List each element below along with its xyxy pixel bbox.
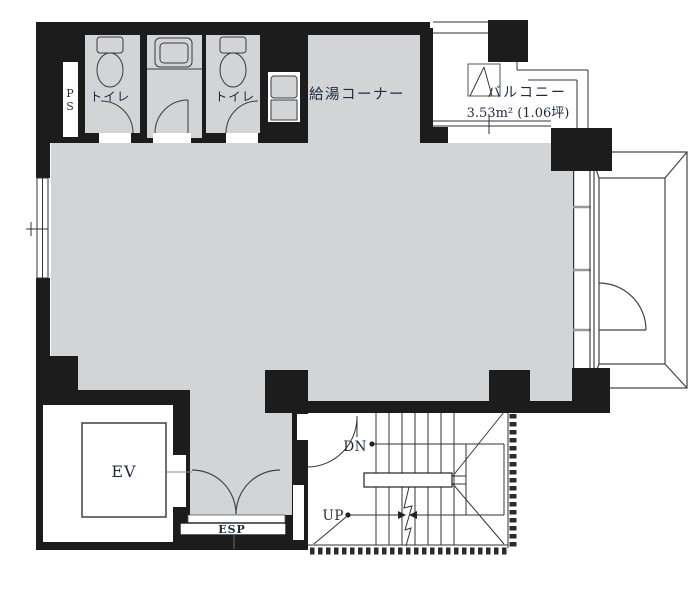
right-bay [573,152,687,388]
elevator-label: EV [111,462,136,481]
stair-bottom-hatch-wall [310,547,508,555]
pier-niche [293,485,304,540]
toilet-left-label: トイレ [90,89,131,104]
stair-dn-dot [369,441,374,446]
wall-column-south [489,370,530,401]
wall-left-upper [36,143,50,178]
bay-door-arc [599,283,646,330]
toilet-right-door-opening [226,133,258,143]
wall-top [308,22,430,35]
bay-miter-br [665,364,687,388]
wall-balcony-block [488,20,528,62]
balcony-area-label: 3.53m² (1.06坪) [467,106,570,121]
kitchenette-sink [271,76,297,98]
stairs-down-label: DN [343,439,367,455]
toilet-left-room [85,35,140,133]
pipe-space-label-p: P [66,87,74,100]
stair-door-opening [297,414,308,440]
bay-inner-frame [599,178,665,364]
bay-outer-frame [590,152,687,388]
kitchenette-label: 給湯コーナー [309,86,405,103]
pipe-space-label-s: S [66,100,74,113]
stair-landing [364,473,452,487]
stairs-up-label: UP [323,508,344,524]
toilet-right-room [206,35,260,133]
wall-corner-block-se [572,368,610,401]
stair-right-hatch-wall [509,414,517,548]
stair-winder-diag-down [452,483,504,544]
wall-corner-block-ne [551,128,612,171]
entrance-threshold [188,515,285,523]
bay-miter-tr [665,152,687,178]
main-room-floor [51,143,575,401]
stair-up-dot [345,512,350,517]
floor-plan: P S トイレ トイレ 給湯コーナー バルコニー 3.53m² (1.06坪) … [0,0,694,596]
esp-label: ESP [218,523,246,536]
wall-corner-kitchenette [420,127,448,143]
balcony-label: バルコニー [487,85,567,101]
toilet-left-door-opening [99,133,131,143]
kitchenette-counter [271,100,297,120]
wall-column-entrance [265,370,308,413]
wall-left-step [36,356,78,392]
wall-stair-top-band [308,401,610,413]
wall-left-lower [36,278,50,358]
wall-balcony-left [420,28,433,130]
toilet-right-label: トイレ [215,89,256,104]
stair-break-zigzag [404,487,412,546]
floor-plan-drawing: P S トイレ トイレ 給湯コーナー バルコニー 3.53m² (1.06坪) … [0,0,694,596]
staircase [308,412,517,555]
elevator-door-opening [173,455,186,507]
washroom-door-opening [153,133,191,143]
